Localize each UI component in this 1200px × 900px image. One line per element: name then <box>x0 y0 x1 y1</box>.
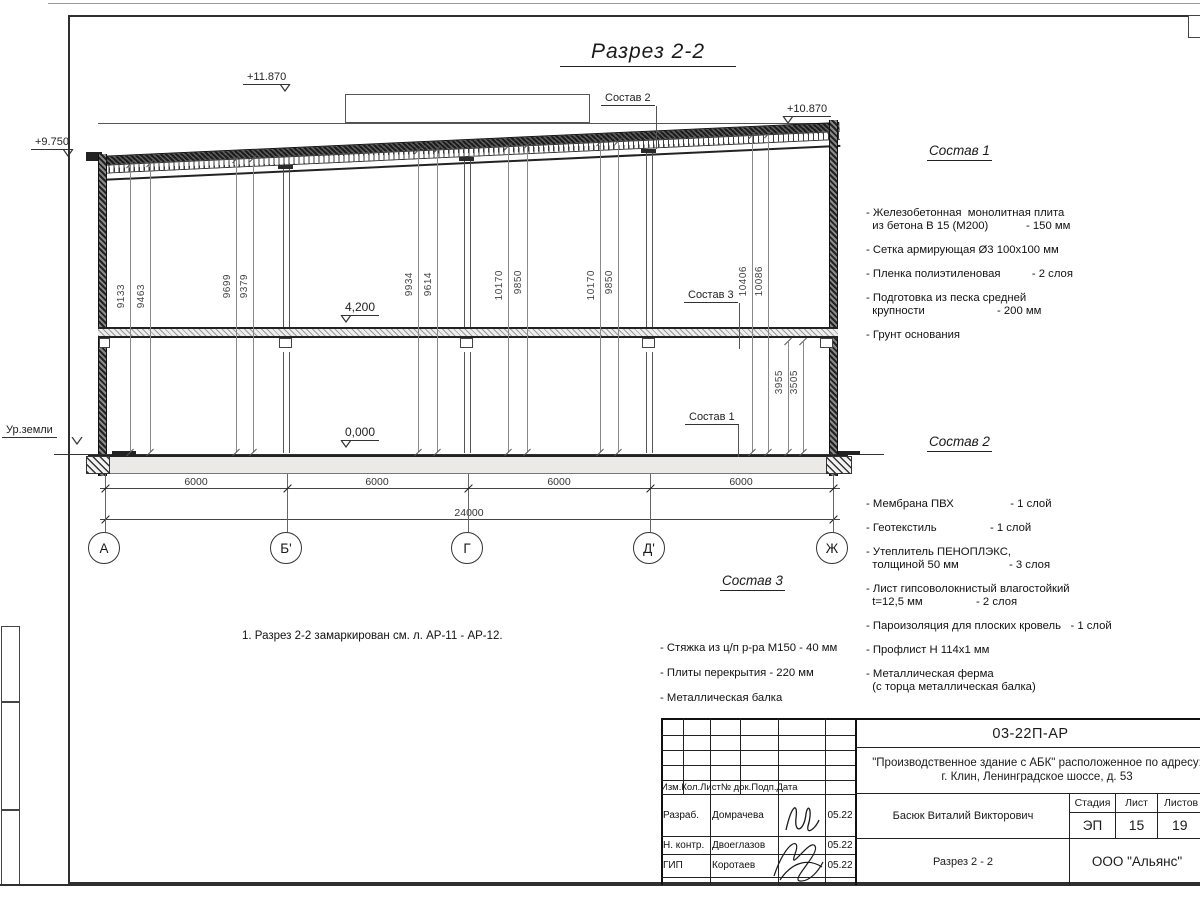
axis-extension-line <box>650 474 651 532</box>
elevation-mark-0000: 0,000 <box>341 425 379 441</box>
column-upper <box>464 160 471 327</box>
ground-level-label: Ур.земли <box>6 424 53 436</box>
composition-item: - Плиты перекрытия - 220 мм <box>660 667 920 680</box>
dimension-line <box>600 143 601 452</box>
project-name: "Производственное здание с АБК" располож… <box>857 748 1200 792</box>
callout-sostav-2: Состав 2 <box>601 92 655 106</box>
staff-name: Коротаев <box>710 854 778 877</box>
composition-1-heading: Состав 1 <box>927 143 992 161</box>
dimension-value: 9934 <box>404 272 415 296</box>
axis-extension-line <box>833 474 834 532</box>
parapet-top-line <box>98 123 838 124</box>
dimension-line <box>508 147 509 452</box>
axis-extension-line <box>105 474 106 532</box>
span-dimension-value: 6000 <box>711 476 771 488</box>
revision-header-cell: № док. <box>721 780 751 794</box>
footing-edge-left <box>112 451 136 455</box>
elevation-arrow-icon <box>340 440 352 448</box>
composition-item: - Подготовка из песка средней крупности … <box>866 292 1200 318</box>
dimension-value: 10170 <box>494 270 505 300</box>
composition-item: - Железобетонная монолитная плита из бет… <box>866 207 1200 233</box>
right-wall <box>829 120 838 476</box>
dimension-value: 9133 <box>116 284 127 308</box>
composition-3-list: - Стяжка из ц/п р-ра М150 - 40 мм- Плиты… <box>660 616 920 717</box>
dimension-value: 3505 <box>789 370 800 394</box>
dimension-value: 9699 <box>222 274 233 298</box>
staff-role: Разраб. <box>661 794 710 836</box>
dimension-value: 9850 <box>604 270 615 294</box>
dimension-line <box>437 150 438 452</box>
callout-label: Состав 3 <box>688 289 734 301</box>
staff-row: Разраб. Домрачева 05.22 <box>661 794 855 836</box>
staff-date: 05.22 <box>825 794 855 836</box>
titleblock-line <box>661 735 855 736</box>
drawing-title: Разрез 2-2 <box>560 40 736 67</box>
column-upper <box>646 152 653 327</box>
slab-bracket <box>99 338 110 348</box>
dimension-line <box>803 342 804 452</box>
callout-label: Состав 1 <box>689 411 735 423</box>
elevation-mark-4200: 4,200 <box>341 300 379 316</box>
project-name-line1: "Производственное здание с АБК" располож… <box>872 756 1200 770</box>
axis-bubble: Ж <box>816 532 848 564</box>
composition-2-heading: Состав 2 <box>927 434 992 452</box>
slab-bracket <box>279 338 292 348</box>
revision-header-cell: Изм. <box>661 780 681 794</box>
revision-header-row: Изм.Кол.Лист№ док.Подп.Дата <box>661 780 855 794</box>
column-upper <box>283 168 290 327</box>
margin-box-1 <box>1 626 20 702</box>
axis-extension-line <box>287 474 288 532</box>
column-lower <box>464 352 471 453</box>
callout-leader <box>739 303 740 349</box>
project-name-line2: г. Клин, Ленинградское шоссе, д. 53 <box>941 770 1132 784</box>
composition-item: - Металлическая балка <box>660 692 920 705</box>
callout-leader <box>738 425 739 457</box>
dimension-value: 10170 <box>586 270 597 300</box>
roof-shaft-outline <box>345 94 590 123</box>
column-capital <box>459 157 474 161</box>
elevation-arrow-icon <box>71 437 83 445</box>
slab-bracket <box>460 338 473 348</box>
staff-name: Двоеглазов <box>710 836 778 854</box>
composition-item: - Утеплитель ПЕНОПЛЭКС, толщиной 50 мм -… <box>866 546 1200 572</box>
footing-hatch-left <box>86 456 110 474</box>
dimension-line <box>236 160 237 452</box>
column-lower <box>646 352 653 453</box>
footing-edge-right <box>838 451 860 455</box>
staff-name: Домрачева <box>710 794 778 836</box>
dimension-line <box>768 135 769 452</box>
revision-header-cell: Подп. <box>751 780 776 794</box>
staff-date: 05.22 <box>825 854 855 877</box>
staff-role: Н. контр. <box>661 836 710 854</box>
composition-item: - Сетка армирующая Ø3 100х100 мм <box>866 244 1200 257</box>
dimension-line <box>130 165 131 452</box>
dimension-line <box>150 164 151 452</box>
slab-bracket <box>820 338 833 348</box>
dimension-value: 9614 <box>423 272 434 296</box>
paper-top-edge <box>48 3 1200 4</box>
margin-box-2 <box>1 702 20 810</box>
dim-line-24000 <box>100 519 840 520</box>
composition-1-list: - Железобетонная монолитная плита из бет… <box>866 181 1200 353</box>
elevation-arrow-icon <box>782 116 794 124</box>
dim-line-6000 <box>100 488 840 489</box>
composition-item: - Стяжка из ц/п р-ра М150 - 40 мм <box>660 642 920 655</box>
ground-level-mark: Ур.земли <box>2 424 57 438</box>
revision-header-cell: Дата <box>777 780 798 794</box>
composition-item: - Грунт основания <box>866 329 1200 342</box>
stage-label: Стадия <box>1070 794 1115 812</box>
dimension-line <box>618 142 619 452</box>
sheets-label: Листов <box>1158 794 1200 812</box>
elevation-arrow-icon <box>279 84 291 92</box>
elevation-arrow-icon <box>62 149 74 157</box>
elevation-mark-9750: +9.750 <box>31 136 73 150</box>
composition-item: - Лист гипсоволокнистый влагостойкий t=1… <box>866 583 1200 609</box>
dimension-line <box>253 159 254 452</box>
callout-leader <box>656 106 657 149</box>
revision-header-cell: Лист <box>700 780 721 794</box>
floor-slab-4200 <box>98 327 838 338</box>
axis-bubble: Г <box>451 532 483 564</box>
dimension-value: 9850 <box>513 270 524 294</box>
dimension-value: 9463 <box>136 284 147 308</box>
revision-header-cell: Кол. <box>681 780 700 794</box>
elevation-mark-11870: +11.870 <box>243 71 290 85</box>
elevation-value: +9.750 <box>35 136 69 148</box>
company-name: ООО "Альянс" <box>1070 839 1200 884</box>
span-dimension-value: 6000 <box>166 476 226 488</box>
callout-sostav-3: Состав 3 <box>684 289 738 303</box>
titleblock-line <box>661 765 855 766</box>
footing-hatch-right <box>826 456 852 474</box>
sheet-note: 1. Разрез 2-2 замаркирован см. л. АР-11 … <box>242 630 503 642</box>
sheet: { "sheet": { "title": "Разрез 2-2", "not… <box>0 0 1200 900</box>
dimension-line <box>418 151 419 452</box>
span-dimension-value: 6000 <box>347 476 407 488</box>
dimension-line <box>788 342 789 452</box>
supervisor-name: Басюк Виталий Викторович <box>857 794 1069 837</box>
elevation-value: 4,200 <box>345 300 375 314</box>
axis-extension-line <box>468 474 469 532</box>
document-number: 03-22П-АР <box>857 720 1200 747</box>
dimension-value: 10406 <box>738 266 749 296</box>
composition-item: - Геотекстиль - 1 слой <box>866 522 1200 535</box>
elevation-value: +11.870 <box>247 71 286 83</box>
composition-3-heading: Состав 3 <box>720 573 785 591</box>
sheet-number: 15 <box>1116 813 1157 837</box>
sheets-total: 19 <box>1158 813 1200 837</box>
signature-icon <box>782 796 822 838</box>
drawing-name: Разрез 2 - 2 <box>857 839 1069 884</box>
staff-role: ГИП <box>661 854 710 877</box>
titleblock-line <box>661 750 855 751</box>
sheet-label: Лист <box>1116 794 1157 812</box>
elevation-value: 0,000 <box>345 425 375 439</box>
sheet-bottom-edge <box>0 884 1200 886</box>
composition-item: - Пленка полиэтиленовая - 2 слоя <box>866 268 1200 281</box>
signature-icon <box>770 834 826 884</box>
callout-label: Состав 2 <box>605 92 651 104</box>
column-lower <box>283 352 290 453</box>
total-dimension-value: 24000 <box>439 507 499 519</box>
left-wall <box>98 154 107 476</box>
dimension-value: 3955 <box>774 370 785 394</box>
dimension-line <box>527 146 528 452</box>
elevation-arrow-icon <box>340 315 352 323</box>
dimension-value: 9379 <box>239 274 250 298</box>
corner-doc-box <box>1188 15 1200 38</box>
dimension-line <box>752 136 753 452</box>
span-dimension-value: 6000 <box>529 476 589 488</box>
elevation-value: +10.870 <box>787 103 827 115</box>
axis-bubble: А <box>88 532 120 564</box>
staff-date: 05.22 <box>825 836 855 854</box>
axis-bubble: Д' <box>633 532 665 564</box>
column-capital <box>278 165 293 169</box>
dimension-value: 10086 <box>754 266 765 296</box>
axis-bubble: Б' <box>270 532 302 564</box>
slab-bracket <box>642 338 655 348</box>
stage-value: ЭП <box>1070 813 1115 837</box>
ground-floor-slab <box>88 455 848 474</box>
elevation-mark-10870: +10.870 <box>783 103 831 117</box>
margin-box-3 <box>1 810 20 885</box>
callout-sostav-1: Состав 1 <box>685 411 739 425</box>
column-capital <box>641 149 656 153</box>
composition-item: - Мембрана ПВХ - 1 слой <box>866 498 1200 511</box>
